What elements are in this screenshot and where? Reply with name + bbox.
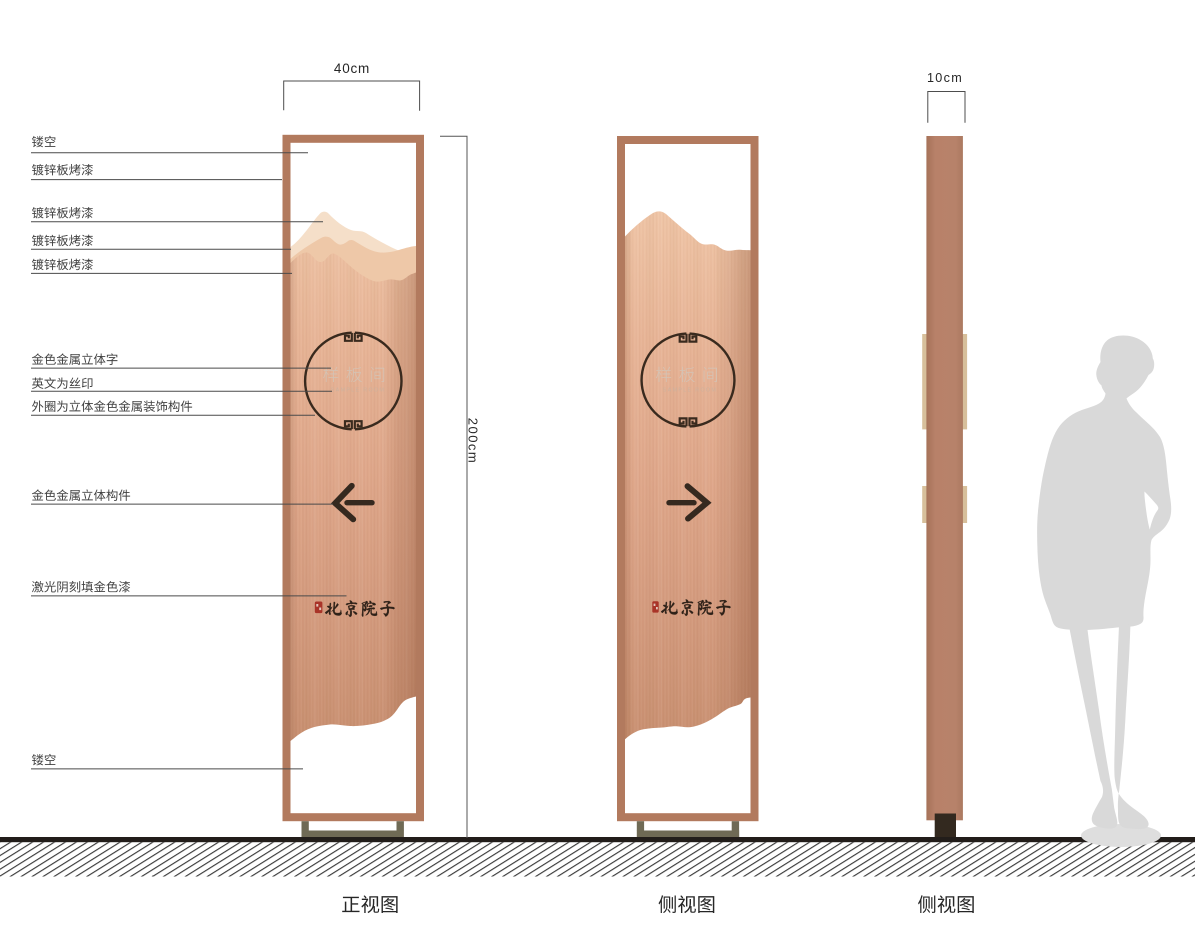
svg-text:10cm: 10cm: [927, 71, 963, 85]
svg-text:SAMPLE ROOM: SAMPLE ROOM: [331, 388, 385, 394]
svg-text:SAMPLE ROOM: SAMPLE ROOM: [663, 388, 717, 394]
svg-text:40cm: 40cm: [334, 61, 370, 76]
svg-text:200cm: 200cm: [466, 418, 481, 465]
